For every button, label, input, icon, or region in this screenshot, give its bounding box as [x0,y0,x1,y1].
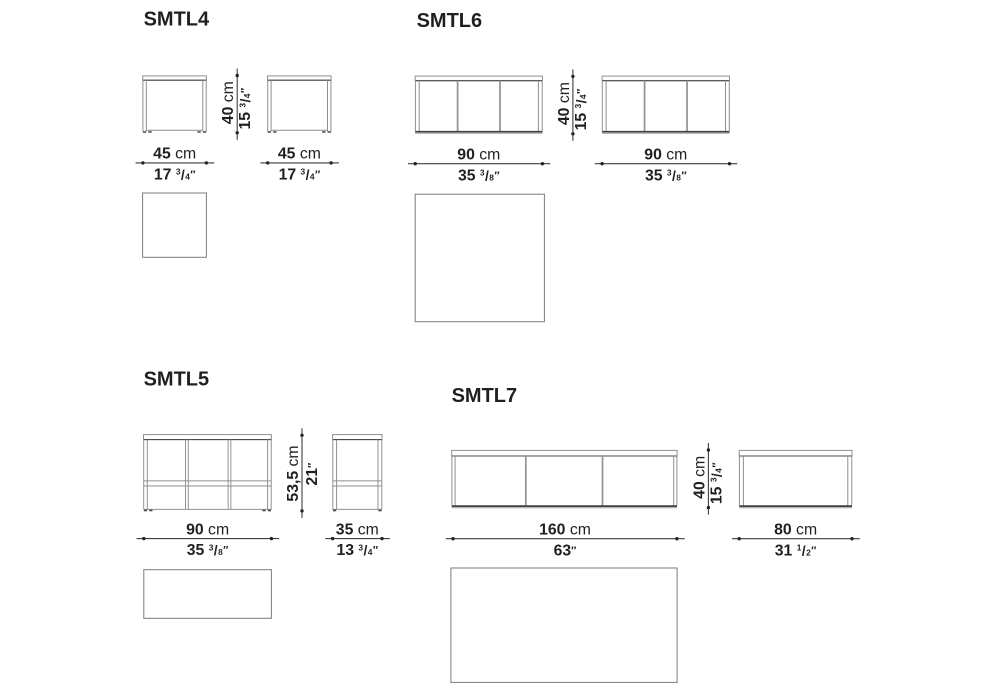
svg-text:90 cm: 90 cm [644,146,687,163]
svg-text:17 3/4″: 17 3/4″ [154,167,196,184]
svg-text:31 1/2″: 31 1/2″ [775,542,817,559]
svg-text:90 cm: 90 cm [186,521,229,538]
svg-text:35 3/8″: 35 3/8″ [645,167,687,184]
svg-text:15 3/4″: 15 3/4″ [708,462,725,504]
svg-text:35 3/8″: 35 3/8″ [458,167,500,184]
svg-text:90 cm: 90 cm [457,146,500,163]
svg-text:40 cm: 40 cm [556,82,573,125]
svg-text:160 cm: 160 cm [539,521,591,538]
svg-text:45 cm: 45 cm [278,146,321,163]
svg-text:SMTL7: SMTL7 [452,385,518,407]
svg-text:63″: 63″ [554,542,578,559]
svg-text:SMTL5: SMTL5 [144,368,210,390]
svg-text:17 3/4″: 17 3/4″ [279,167,321,184]
svg-text:40 cm: 40 cm [691,456,708,499]
svg-text:15 3/4″: 15 3/4″ [237,87,254,129]
svg-text:13 3/4″: 13 3/4″ [336,542,378,559]
svg-text:53,5 cm: 53,5 cm [285,445,302,501]
svg-text:15 3/4″: 15 3/4″ [573,88,590,130]
svg-text:35 3/8″: 35 3/8″ [187,542,229,559]
svg-text:45 cm: 45 cm [153,146,196,163]
svg-text:21″: 21″ [304,462,321,486]
svg-text:SMTL4: SMTL4 [144,8,210,30]
svg-text:40 cm: 40 cm [220,81,237,124]
svg-text:35 cm: 35 cm [336,521,379,538]
svg-text:SMTL6: SMTL6 [417,10,483,32]
svg-text:80 cm: 80 cm [774,521,817,538]
